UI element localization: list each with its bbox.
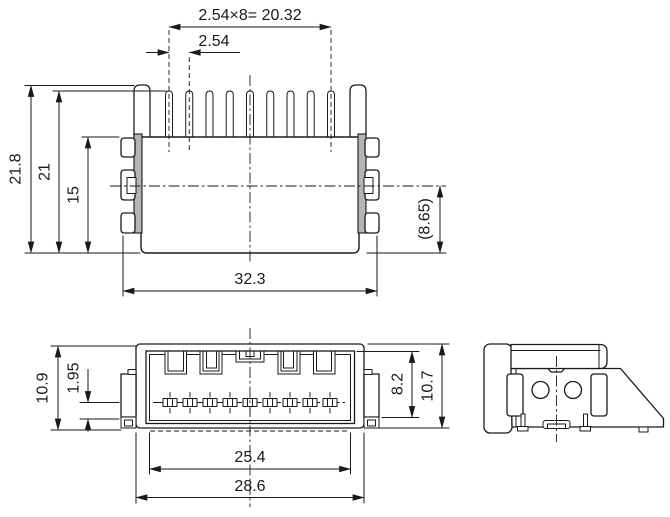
- top-view: [110, 30, 446, 264]
- dim-label-body-height: 15: [66, 186, 83, 204]
- side-view: [484, 344, 664, 442]
- front-foot-left-slot: [125, 420, 133, 426]
- contact-group: [183, 399, 197, 407]
- end-post-right: [350, 85, 366, 137]
- dim-label-contact-offset: 1.95: [66, 362, 83, 393]
- pin: [267, 91, 274, 137]
- pin: [206, 91, 213, 137]
- contact-group: [263, 399, 277, 407]
- side-top-bar: [511, 345, 607, 369]
- dim-label-cavity-width: 25.4: [234, 449, 265, 466]
- dim-label-pitch: 2.54: [198, 33, 229, 50]
- dim-label-body-height: 10.7: [420, 370, 437, 401]
- side-hole-right: [565, 382, 582, 399]
- drawing-canvas: 2.54×8= 20.32 2.54 21.8 21 15 (8.65) 32.…: [0, 0, 670, 517]
- side-rear-foot: [639, 427, 648, 432]
- dim-label-body-width: 28.6: [234, 478, 265, 495]
- dim-label-pitch-total: 2.54×8= 20.32: [198, 7, 301, 24]
- contact-group: [163, 399, 177, 407]
- contact-group: [323, 399, 337, 407]
- tab-inner: [127, 178, 136, 194]
- dim-label-body-width: 32.3: [234, 271, 265, 288]
- contact-group: [203, 399, 217, 407]
- front-tab-left: [121, 374, 136, 417]
- front-tab-left-notch: [128, 370, 136, 375]
- dim-label-pin-height: 21: [37, 163, 54, 181]
- side-hook-left-foot: [518, 427, 529, 432]
- tab: [121, 213, 135, 233]
- side-rib-left: [507, 374, 523, 416]
- contact-group: [223, 399, 237, 407]
- contact-group: [283, 399, 297, 407]
- side-hook-left: [521, 414, 525, 427]
- tab: [121, 138, 135, 157]
- tab-inner: [364, 178, 373, 194]
- front-foot-right-slot: [368, 420, 376, 426]
- pin: [287, 91, 294, 137]
- front-tab-right: [364, 374, 379, 417]
- side-tabs-left: [121, 138, 136, 233]
- side-rib-right: [591, 374, 607, 416]
- side-hole-left: [532, 382, 549, 399]
- dim-label-overall-height: 21.8: [8, 153, 25, 184]
- front-tab-right-notch: [364, 370, 372, 375]
- side-tabs-right: [364, 138, 379, 233]
- dim-label-overall-height: 10.9: [35, 372, 52, 403]
- end-post-left: [134, 85, 150, 137]
- tab: [365, 138, 379, 157]
- dim-label-ref-height: (8.65): [417, 198, 434, 240]
- tab: [365, 213, 379, 233]
- pin: [226, 91, 233, 137]
- side-hook-right-foot: [580, 427, 591, 432]
- pin: [307, 91, 314, 137]
- contact-group: [303, 399, 317, 407]
- connector-dimension-drawing: 2.54×8= 20.32 2.54 21.8 21 15 (8.65) 32.…: [0, 0, 670, 517]
- dim-label-cavity-height: 8.2: [390, 373, 407, 395]
- side-hook-right: [584, 414, 588, 427]
